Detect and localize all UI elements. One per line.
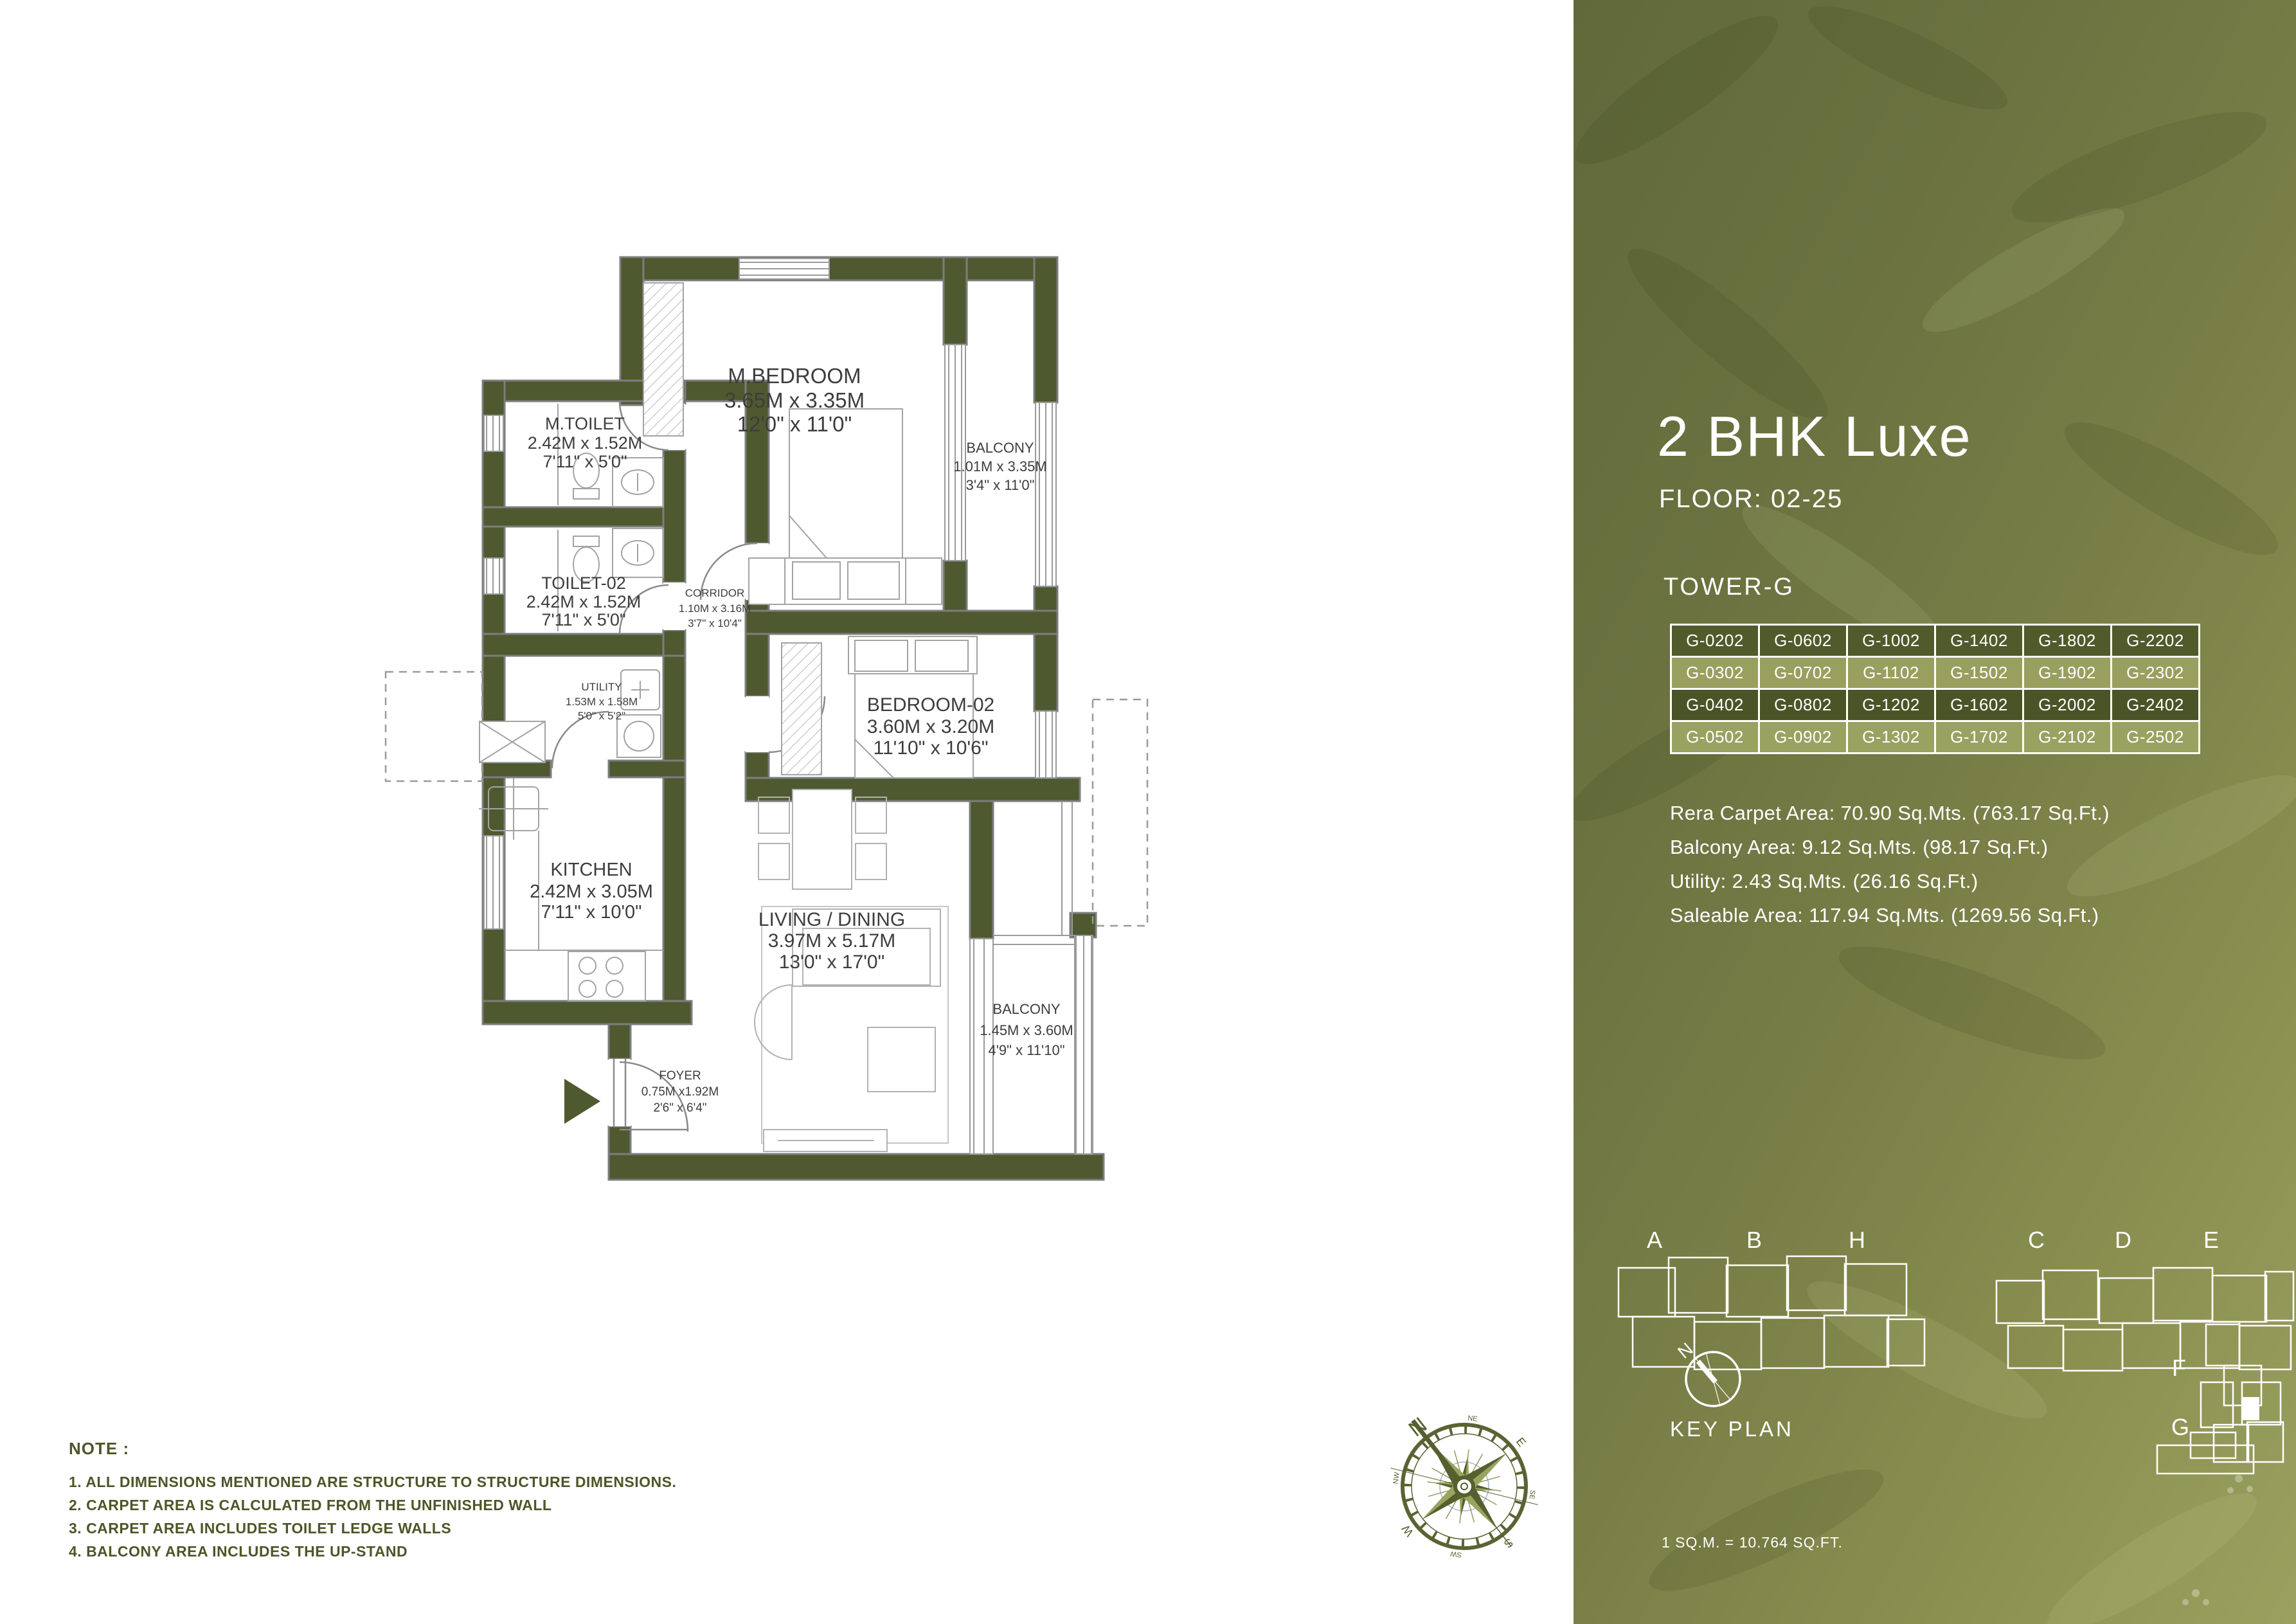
room-metric: 1.01M x 3.35M [953,458,1047,474]
room-imperial: 13'0" x 17'0" [779,952,885,973]
room-imperial: 5'0" x 5'2" [578,710,625,722]
compass-e: E [1514,1435,1529,1449]
notes: NOTE : 1. ALL DIMENSIONS MENTIONED ARE S… [69,1439,676,1563]
room-label-kitchen: KITCHEN 2.42M x 3.05M 7'11" x 10'0" [530,860,653,923]
unit-number-table: G-0202 G-0602 G-1002 G-1402 G-1802 G-220… [1670,624,2200,754]
unit-cell: G-1202 [1847,689,1935,721]
block-label-b: B [1746,1227,1762,1253]
room-imperial: 2'6" x 6'4" [653,1101,706,1115]
area-line: Saleable Area: 117.94 Sq.Mts. (1269.56 S… [1670,898,2110,932]
unit-cell: G-0602 [1759,625,1847,657]
room-label-toilet-02: TOILET-02 2.42M x 1.52M 7'11" x 5'0" [526,573,641,629]
room-imperial: 7'11" x 5'0" [543,452,627,471]
north-label: N [1674,1339,1696,1362]
notes-title: NOTE : [69,1439,676,1459]
room-metric: 0.75M x1.92M [641,1085,719,1099]
compass-rose-icon: N E S W NE SE SW NW [1349,1369,1574,1597]
unit-cell: G-0702 [1759,657,1847,689]
unit-cell: G-0402 [1671,689,1759,721]
note-item: 1. ALL DIMENSIONS MENTIONED ARE STRUCTUR… [69,1470,676,1493]
unit-cell: G-0502 [1671,721,1759,753]
unit-cell: G-1402 [1935,625,2023,657]
room-imperial: 7'11" x 10'0" [541,902,642,923]
unit-cell: G-2002 [2023,689,2112,721]
tower-label: TOWER-G [1664,573,1795,601]
room-name: KITCHEN [550,860,632,880]
unit-cell: G-2402 [2112,689,2200,721]
key-plan-label: KEY PLAN [1670,1417,1794,1441]
room-name: M.TOILET [545,414,625,433]
room-metric: 2.42M x 1.52M [528,433,643,453]
block-label-e: E [2203,1227,2219,1253]
compass-sw: SW [1449,1549,1462,1558]
table-row: G-0502 G-0902 G-1302 G-1702 G-2102 G-250… [1671,721,2200,753]
area-summary: Rera Carpet Area: 70.90 Sq.Mts. (763.17 … [1670,796,2110,932]
table-row: G-0202 G-0602 G-1002 G-1402 G-1802 G-220… [1671,625,2200,657]
room-label-balcony-top: BALCONY 1.01M x 3.35M 3'4" x 11'0" [953,440,1047,493]
block-label-a: A [1647,1227,1662,1253]
room-label-balcony-bottom: BALCONY 1.45M x 3.60M 4'9" x 11'10" [980,1001,1073,1058]
unit-cell: G-0302 [1671,657,1759,689]
compass-w: W [1399,1522,1416,1539]
brochure-page: M.BEDROOM 3.65M x 3.35M 12'0" x 11'0" BA… [0,0,2296,1624]
room-metric: 2.42M x 3.05M [530,881,653,902]
unit-cell: G-0902 [1759,721,1847,753]
plan-title: 2 BHK Luxe [1657,404,1972,469]
room-label-bedroom-02: BEDROOM-02 3.60M x 3.20M 11'10" x 10'6" [867,694,994,759]
room-label-corridor: CORRIDOR 1.10M x 3.16M 3'7" x 10'4" [679,587,751,629]
room-name: UTILITY [581,681,622,693]
compass-nw: NW [1392,1472,1401,1484]
room-name: TOILET-02 [541,573,626,593]
unit-cell: G-1102 [1847,657,1935,689]
block-label-f: F [2172,1355,2186,1381]
entry-arrow-icon [564,1079,600,1124]
room-name: CORRIDOR [685,587,745,599]
unit-cell: G-1002 [1847,625,1935,657]
room-imperial: 7'11" x 5'0" [541,610,625,629]
room-metric: 3.65M x 3.35M [724,388,865,412]
room-metric: 2.42M x 1.52M [526,592,641,611]
note-item: 3. CARPET AREA INCLUDES TOILET LEDGE WAL… [69,1517,676,1540]
unit-cell: G-2302 [2112,657,2200,689]
note-item: 2. CARPET AREA IS CALCULATED FROM THE UN… [69,1493,676,1517]
unit-cell: G-1802 [2023,625,2112,657]
room-metric: 1.53M x 1.58M [566,696,638,708]
key-plan-tower-fg [2157,1324,2283,1474]
floor-plan: M.BEDROOM 3.65M x 3.35M 12'0" x 11'0" BA… [0,0,1574,1624]
room-name: BALCONY [992,1001,1060,1017]
area-line: Balcony Area: 9.12 Sq.Mts. (98.17 Sq.Ft.… [1670,830,2110,864]
key-plan-unit-marker [2241,1397,2259,1420]
note-item: 4. BALCONY AREA INCLUDES THE UP-STAND [69,1540,676,1563]
room-imperial: 11'10" x 10'6" [874,737,989,759]
block-label-h: H [1849,1227,1865,1253]
unit-cell: G-1602 [1935,689,2023,721]
north-indicator-icon: N [1674,1339,1740,1407]
fixtures-utility [480,670,661,762]
block-label-d: D [2115,1227,2131,1253]
room-metric: 1.45M x 3.60M [980,1022,1073,1038]
room-imperial: 3'4" x 11'0" [966,477,1035,493]
unit-cell: G-0202 [1671,625,1759,657]
conversion-note: 1 SQ.M. = 10.764 SQ.FT. [1662,1534,1843,1551]
room-name: LIVING / DINING [758,909,905,930]
room-name: BEDROOM-02 [867,694,994,716]
unit-cell: G-1902 [2023,657,2112,689]
block-label-c: C [2028,1227,2045,1253]
room-imperial: 3'7" x 10'4" [688,617,742,629]
room-imperial: 12'0" x 11'0" [737,412,852,436]
room-label-foyer: FOYER 0.75M x1.92M 2'6" x 6'4" [641,1069,719,1115]
room-metric: 3.60M x 3.20M [867,716,994,737]
room-label-living: LIVING / DINING 3.97M x 5.17M 13'0" x 17… [758,909,905,973]
floor-range: FLOOR: 02-25 [1659,485,1843,514]
room-label-m-bedroom: M.BEDROOM 3.65M x 3.35M 12'0" x 11'0" [724,364,865,436]
compass-s: S [1502,1536,1516,1551]
unit-cell: G-2502 [2112,721,2200,753]
unit-cell: G-1302 [1847,721,1935,753]
room-metric: 3.97M x 5.17M [768,930,895,952]
room-imperial: 4'9" x 11'10" [988,1042,1064,1058]
area-line: Utility: 2.43 Sq.Mts. (26.16 Sq.Ft.) [1670,864,2110,898]
room-name: BALCONY [966,440,1034,456]
room-name: FOYER [659,1069,701,1083]
table-row: G-0302 G-0702 G-1102 G-1502 G-1902 G-230… [1671,657,2200,689]
info-panel: A B H C D E F G N 2 BHK Luxe FLOOR: 02-2… [1574,0,2296,1624]
room-metric: 1.10M x 3.16M [679,602,751,615]
unit-cell: G-1702 [1935,721,2023,753]
unit-cell: G-2202 [2112,625,2200,657]
key-plan-cluster-cde [1996,1268,2293,1371]
unit-cell: G-2102 [2023,721,2112,753]
block-label-g: G [2171,1414,2189,1440]
compass-se: SE [1527,1490,1536,1500]
furniture-m-bedroom [643,283,942,604]
unit-cell: G-0802 [1759,689,1847,721]
table-row: G-0402 G-0802 G-1202 G-1602 G-2002 G-240… [1671,689,2200,721]
unit-cell: G-1502 [1935,657,2023,689]
room-name: M.BEDROOM [728,364,861,388]
compass-ne: NE [1467,1414,1478,1423]
room-label-utility: UTILITY 1.53M x 1.58M 5'0" x 5'2" [566,681,638,722]
area-line: Rera Carpet Area: 70.90 Sq.Mts. (763.17 … [1670,796,2110,830]
